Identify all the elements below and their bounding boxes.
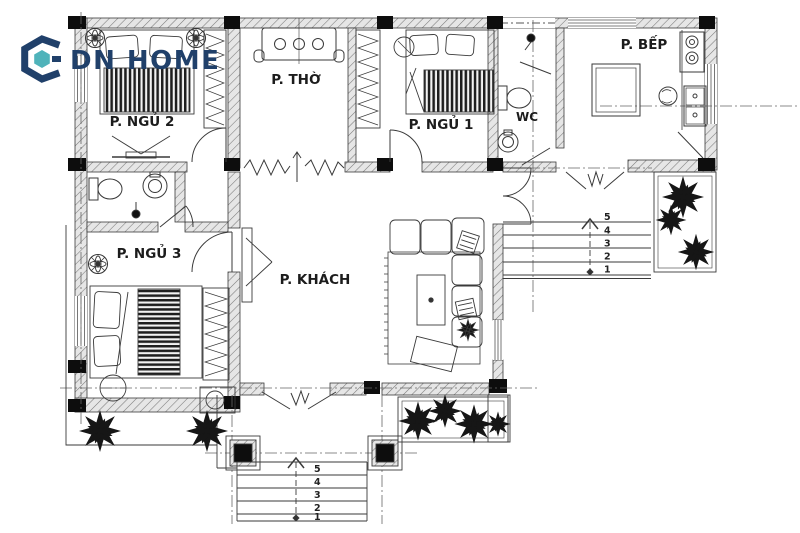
ceiling-flower-icon	[89, 255, 108, 274]
toilet-tank	[89, 178, 98, 200]
porch-column	[368, 436, 402, 470]
plant-icon	[398, 401, 437, 440]
bed3-blanket	[138, 289, 180, 375]
ottoman	[410, 336, 457, 371]
floor-plan-drawing: P. NGỦ 2 P. THỜ P. NGỦ 1 WC P. BẾP P. NG…	[0, 0, 800, 533]
shower-head-icon	[527, 34, 535, 42]
side-steps	[503, 219, 651, 279]
logo-text: DN HOME	[70, 46, 220, 76]
wardrobe-bedroom3	[203, 288, 229, 380]
step-number: 2	[604, 252, 611, 263]
step-number: 1	[314, 512, 321, 523]
room-wc	[498, 34, 535, 152]
label-wc: WC	[516, 110, 538, 124]
side-step-numbers: 5 4 3 2 1	[604, 212, 611, 276]
step-number: 3	[314, 490, 321, 501]
door-landing-bottom	[503, 196, 531, 224]
step-number: 5	[604, 212, 611, 223]
label-kitchen: P. BẾP	[621, 34, 668, 53]
kitchen-island	[592, 64, 640, 116]
logo: DN HOME	[25, 39, 221, 79]
plant-icon	[458, 320, 479, 341]
bed1-blanket	[424, 70, 494, 112]
label-worship: P. THỜ	[271, 70, 321, 88]
logo-notch	[52, 56, 61, 62]
step-number: 4	[314, 477, 321, 488]
label-bedroom2: P. NGỦ 2	[110, 111, 175, 130]
plant-icon	[186, 410, 228, 452]
front-steps	[237, 458, 367, 521]
step-number: 3	[604, 239, 611, 250]
sofa-cushion	[452, 255, 482, 285]
step-number: 1	[604, 265, 611, 276]
door-bedroom3	[192, 232, 232, 272]
ceiling-flower-icon	[187, 29, 206, 48]
toilet-icon	[98, 179, 122, 199]
front-step-numbers: 5 4 3 2 1	[314, 464, 321, 523]
front-porch	[66, 225, 508, 521]
plant-icon	[428, 394, 462, 428]
plant-icon	[79, 410, 121, 452]
room-living	[242, 218, 484, 372]
label-living: P. KHÁCH	[280, 271, 351, 288]
plant-icon	[485, 411, 510, 436]
ceiling-flower-icon	[86, 29, 105, 48]
door-bedroom1	[390, 130, 422, 162]
sofa-cushion	[390, 220, 420, 254]
sofa-cushion	[421, 220, 451, 254]
plant-icon	[662, 176, 704, 218]
toilet-icon	[507, 88, 531, 108]
sink-icon	[143, 174, 167, 198]
door-bedroom2	[192, 128, 226, 162]
floor-drain-icon	[132, 210, 140, 218]
label-bedroom1: P. NGỦ 1	[409, 114, 474, 133]
step-number: 5	[314, 464, 321, 475]
room-bedroom3	[89, 255, 230, 402]
logo-inner-hexagon-icon	[34, 50, 50, 68]
porch-column	[226, 436, 260, 470]
step-number: 4	[604, 226, 611, 237]
room-bedroom1	[356, 30, 494, 128]
plant-icon	[656, 205, 687, 236]
toilet-tank	[498, 86, 507, 110]
plant-icon	[678, 234, 714, 270]
label-bedroom3: P. NGỦ 3	[117, 243, 182, 262]
door-wc	[520, 62, 551, 74]
ensuite-bathroom	[89, 172, 167, 218]
sofa-set	[384, 218, 484, 372]
sofa-cushion	[452, 286, 482, 316]
floor-plan-page: P. NGỦ 2 P. THỜ P. NGỦ 1 WC P. BẾP P. NG…	[0, 0, 800, 533]
